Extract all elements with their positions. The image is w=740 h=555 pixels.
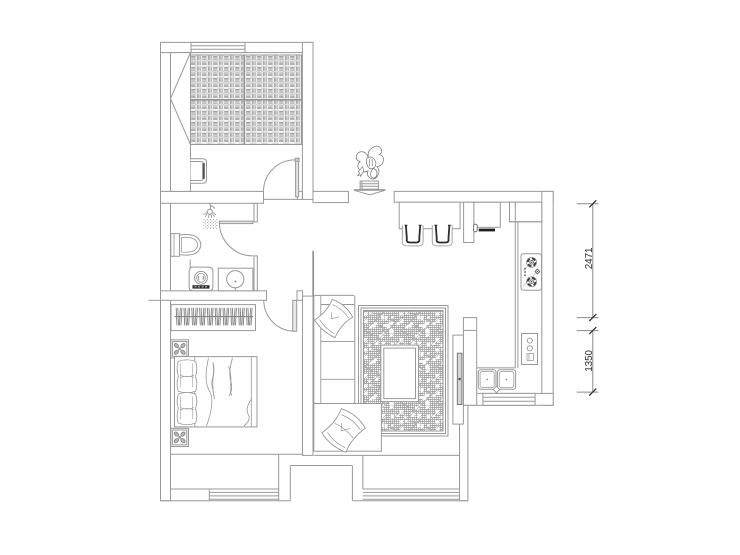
svg-text:2471: 2471 [584, 248, 595, 270]
svg-text:1350: 1350 [584, 349, 595, 371]
